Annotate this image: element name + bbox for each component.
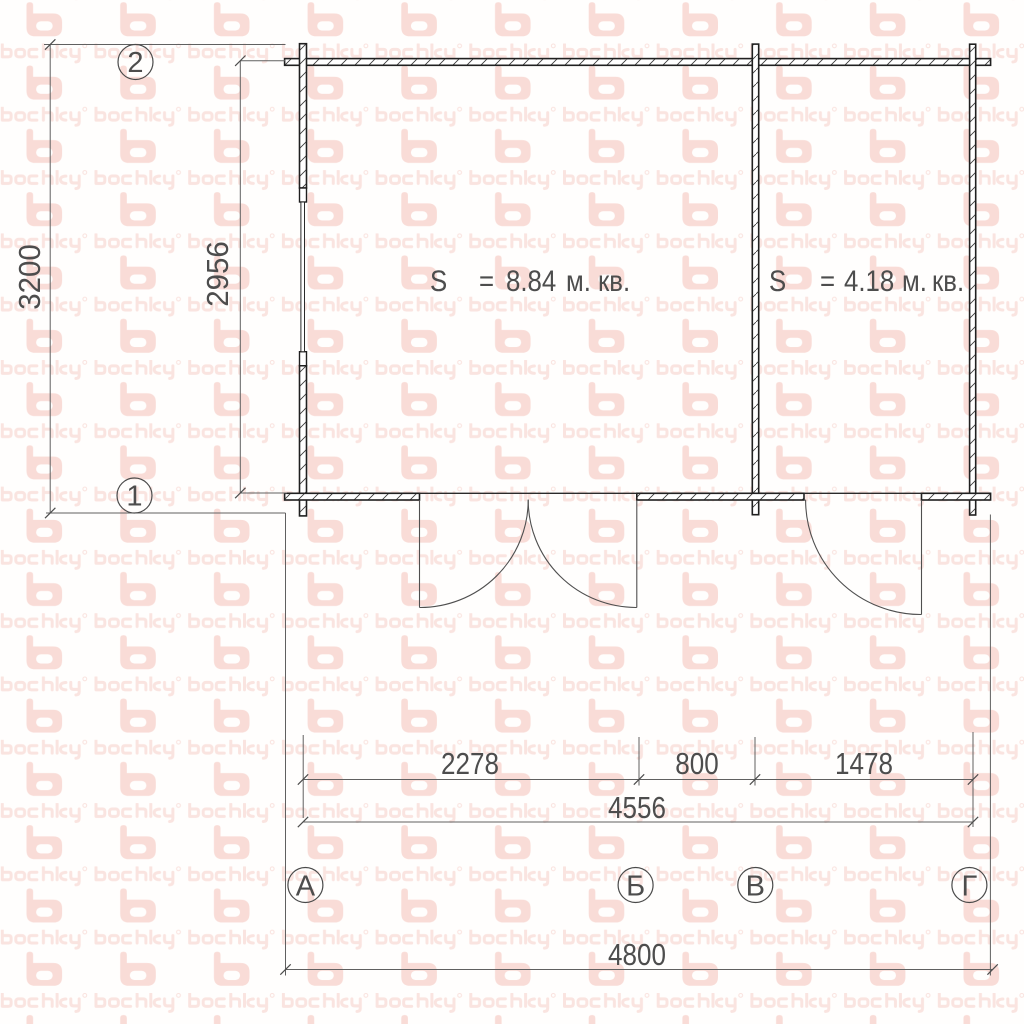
svg-text:2278: 2278 — [441, 747, 499, 782]
svg-text:4.18: 4.18 — [844, 264, 894, 297]
svg-text:кв.: кв. — [932, 264, 964, 297]
svg-text:4800: 4800 — [608, 938, 666, 973]
svg-text:м.: м. — [566, 264, 591, 297]
svg-text:В: В — [746, 871, 765, 903]
svg-text:1478: 1478 — [835, 747, 893, 782]
svg-text:Г: Г — [962, 871, 978, 903]
svg-text:3200: 3200 — [13, 244, 47, 309]
svg-text:4556: 4556 — [608, 791, 666, 826]
svg-text:800: 800 — [675, 747, 718, 782]
svg-text:S: S — [769, 264, 786, 297]
svg-text:Б: Б — [626, 871, 645, 903]
svg-text:=: = — [820, 264, 835, 297]
svg-text:2: 2 — [127, 47, 143, 79]
svg-text:8.84: 8.84 — [506, 264, 556, 297]
svg-text:м.: м. — [902, 264, 927, 297]
svg-text:1: 1 — [126, 481, 142, 513]
svg-text:2956: 2956 — [201, 241, 235, 306]
svg-text:А: А — [296, 871, 316, 903]
svg-text:S: S — [430, 264, 447, 297]
svg-text:кв.: кв. — [598, 264, 630, 297]
svg-text:=: = — [479, 264, 494, 297]
